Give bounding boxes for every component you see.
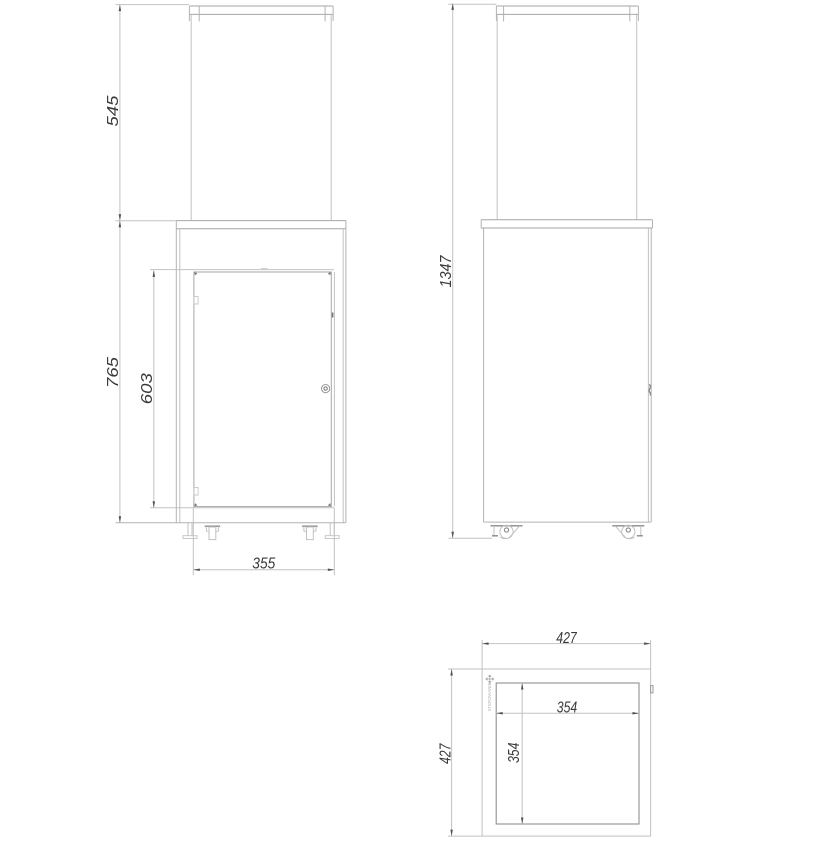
svg-text:STEROWANIE: STEROWANIE (487, 683, 492, 712)
svg-text:545: 545 (105, 95, 122, 126)
svg-text:354: 354 (506, 742, 523, 763)
svg-text:354: 354 (557, 699, 578, 716)
svg-text:1347: 1347 (438, 254, 455, 287)
svg-text:765: 765 (105, 357, 122, 388)
svg-text:427: 427 (438, 742, 455, 764)
svg-text:355: 355 (252, 555, 275, 572)
svg-text:427: 427 (556, 630, 578, 647)
svg-text:603: 603 (139, 373, 156, 404)
